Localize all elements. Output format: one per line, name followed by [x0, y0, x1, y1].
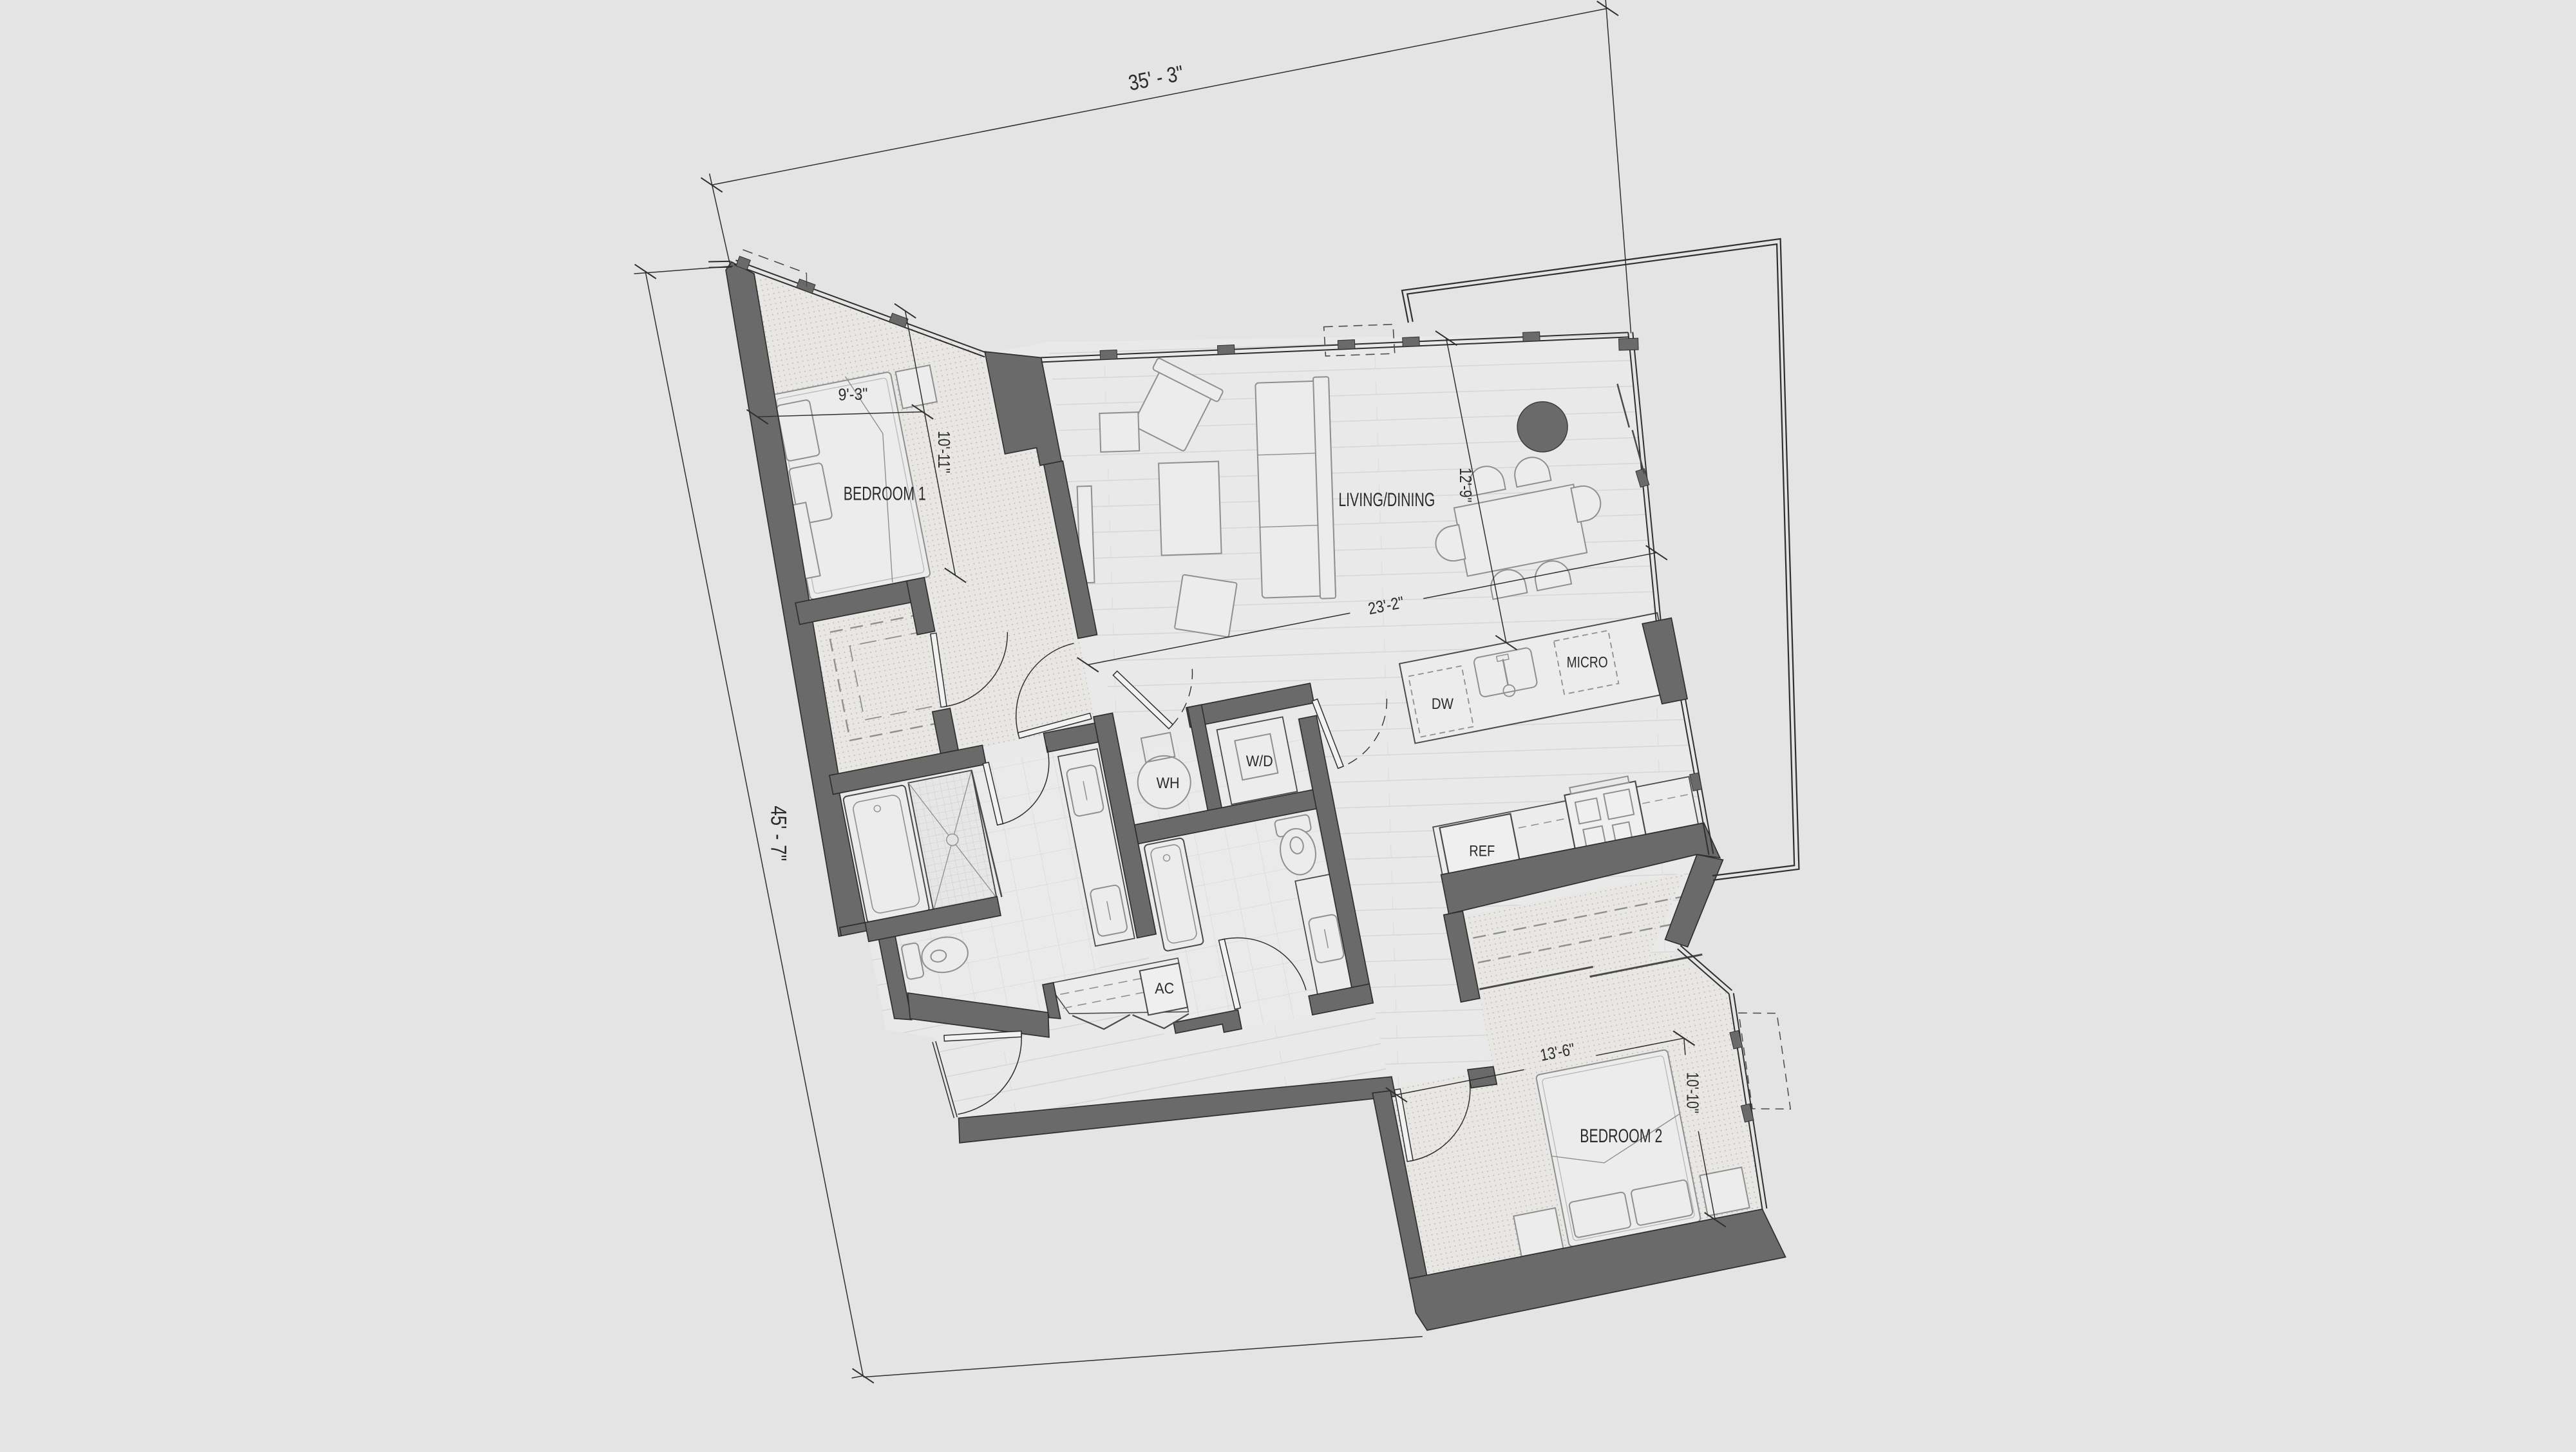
svg-text:DW: DW [1432, 695, 1454, 713]
svg-text:AC: AC [1155, 980, 1174, 997]
svg-text:MICRO: MICRO [1567, 654, 1608, 671]
svg-text:LIVING/DINING: LIVING/DINING [1338, 489, 1435, 511]
svg-text:10'-11": 10'-11" [934, 431, 954, 473]
svg-text:45' - 7": 45' - 7" [766, 806, 791, 861]
svg-text:BEDROOM 2: BEDROOM 2 [1580, 1126, 1662, 1147]
svg-text:9'-3": 9'-3" [838, 384, 868, 404]
svg-text:12'-9": 12'-9" [1456, 467, 1475, 502]
svg-text:BEDROOM 1: BEDROOM 1 [844, 484, 926, 505]
svg-text:REF: REF [1469, 843, 1495, 860]
svg-text:WH: WH [1157, 775, 1180, 792]
svg-text:W/D: W/D [1246, 753, 1273, 770]
svg-text:10'-10": 10'-10" [1683, 1072, 1702, 1113]
